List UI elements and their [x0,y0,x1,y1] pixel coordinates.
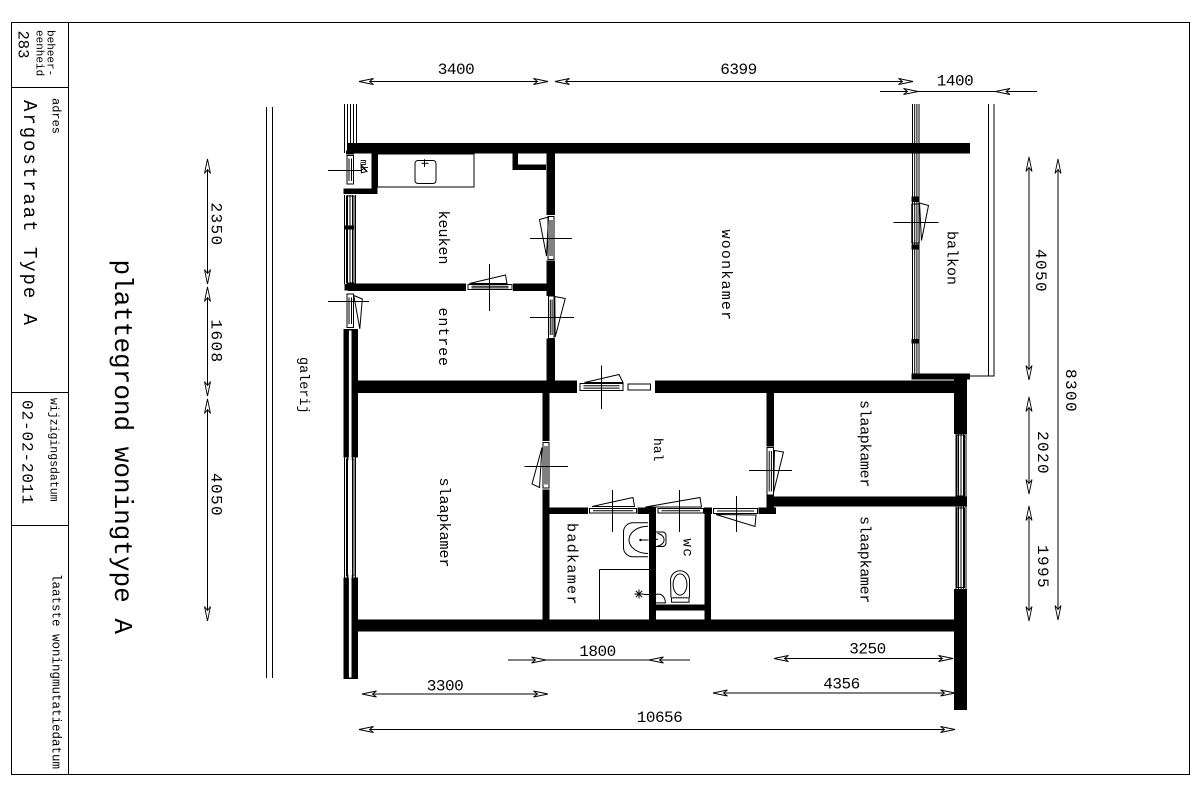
svg-text:slaapkamer: slaapkamer [435,478,452,568]
svg-text:1800: 1800 [579,643,615,661]
svg-text:eenheid: eenheid [33,30,45,76]
svg-text:hal: hal [650,438,665,462]
svg-text:283: 283 [14,31,32,59]
svg-text:slaapkamer: slaapkamer [855,516,872,603]
svg-text:galerij: galerij [295,357,310,414]
svg-text:2350: 2350 [207,203,225,247]
svg-text:badkamer: badkamer [563,523,580,606]
svg-text:plattegrond woningtype A: plattegrond woningtype A [107,260,137,635]
svg-text:1608: 1608 [207,320,225,364]
svg-text:woonkamer: woonkamer [717,230,734,322]
svg-text:entree: entree [434,308,451,367]
svg-text:slaapkamer: slaapkamer [855,400,872,487]
svg-text:02-02-2011: 02-02-2011 [18,400,36,504]
svg-text:wijzigingsdatum: wijzigingsdatum [47,398,60,502]
svg-text:Argostraat Type A: Argostraat Type A [18,100,40,326]
svg-text:balkon: balkon [943,231,960,285]
svg-text:1995: 1995 [1033,545,1051,589]
svg-text:mk: mk [357,160,369,173]
svg-text:8300: 8300 [1061,369,1079,413]
svg-text:keuken: keuken [434,211,451,265]
svg-text:3400: 3400 [438,61,474,79]
svg-text:laatste woningmutatiedatum: laatste woningmutatiedatum [49,574,63,769]
svg-text:4356: 4356 [823,676,859,694]
svg-text:4050: 4050 [207,473,225,517]
svg-text:10656: 10656 [637,709,683,727]
svg-text:2020: 2020 [1033,431,1051,475]
svg-text:adres: adres [49,98,63,134]
svg-text:3250: 3250 [849,641,885,659]
svg-text:1400: 1400 [937,73,973,91]
svg-text:6399: 6399 [720,61,756,79]
svg-text:wc: wc [679,539,695,559]
svg-text:3300: 3300 [427,678,463,696]
svg-text:4050: 4050 [1031,249,1049,293]
